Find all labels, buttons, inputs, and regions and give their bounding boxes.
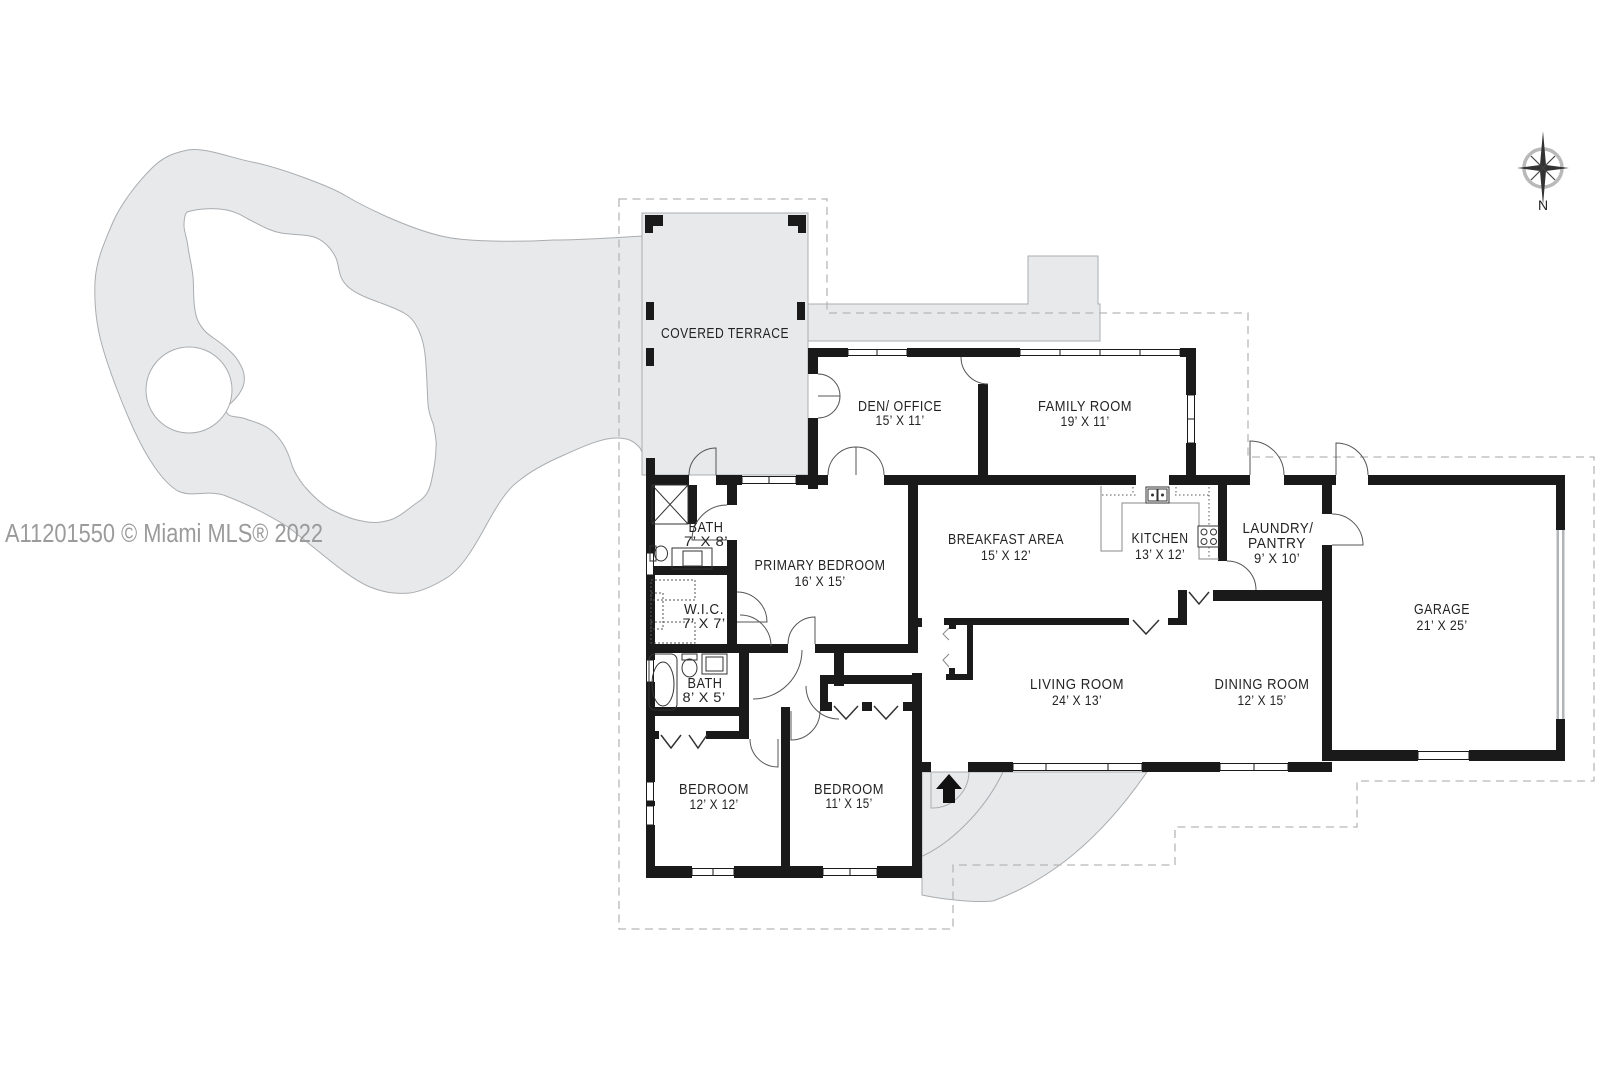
svg-text:15’ X 11’: 15’ X 11’ <box>876 413 925 428</box>
svg-text:KITCHEN: KITCHEN <box>1132 530 1189 547</box>
svg-text:7’ X 8’: 7’ X 8’ <box>684 534 728 549</box>
svg-text:8’ X 5’: 8’ X 5’ <box>683 690 726 705</box>
svg-text:16’ X 15’: 16’ X 15’ <box>795 574 846 589</box>
svg-text:24’ X 13’: 24’ X 13’ <box>1052 693 1102 708</box>
svg-text:A11201550 © Miami MLS® 2022: A11201550 © Miami MLS® 2022 <box>5 520 323 548</box>
svg-text:12’ X 12’: 12’ X 12’ <box>690 797 739 812</box>
svg-text:19’ X 11’: 19’ X 11’ <box>1061 414 1110 429</box>
svg-text:7’ X 7’: 7’ X 7’ <box>683 616 726 631</box>
svg-text:DINING ROOM: DINING ROOM <box>1215 676 1310 693</box>
svg-text:PANTRY: PANTRY <box>1248 535 1306 552</box>
svg-text:N: N <box>1538 197 1548 213</box>
svg-text:FAMILY ROOM: FAMILY ROOM <box>1038 398 1132 415</box>
svg-text:COVERED TERRACE: COVERED TERRACE <box>661 325 789 342</box>
svg-text:BREAKFAST AREA: BREAKFAST AREA <box>948 531 1064 548</box>
svg-text:BEDROOM: BEDROOM <box>679 781 749 798</box>
svg-text:13’ X 12’: 13’ X 12’ <box>1135 547 1185 562</box>
svg-text:15’ X 12’: 15’ X 12’ <box>981 548 1031 563</box>
svg-text:21’ X 25’: 21’ X 25’ <box>1417 618 1468 633</box>
svg-text:9’ X 10’: 9’ X 10’ <box>1254 551 1300 566</box>
svg-text:12’ X 15’: 12’ X 15’ <box>1238 693 1287 708</box>
svg-text:GARAGE: GARAGE <box>1414 601 1470 618</box>
svg-text:11’ X 15’: 11’ X 15’ <box>826 796 873 811</box>
svg-text:PRIMARY BEDROOM: PRIMARY BEDROOM <box>755 557 886 574</box>
svg-text:LIVING ROOM: LIVING ROOM <box>1030 676 1124 693</box>
